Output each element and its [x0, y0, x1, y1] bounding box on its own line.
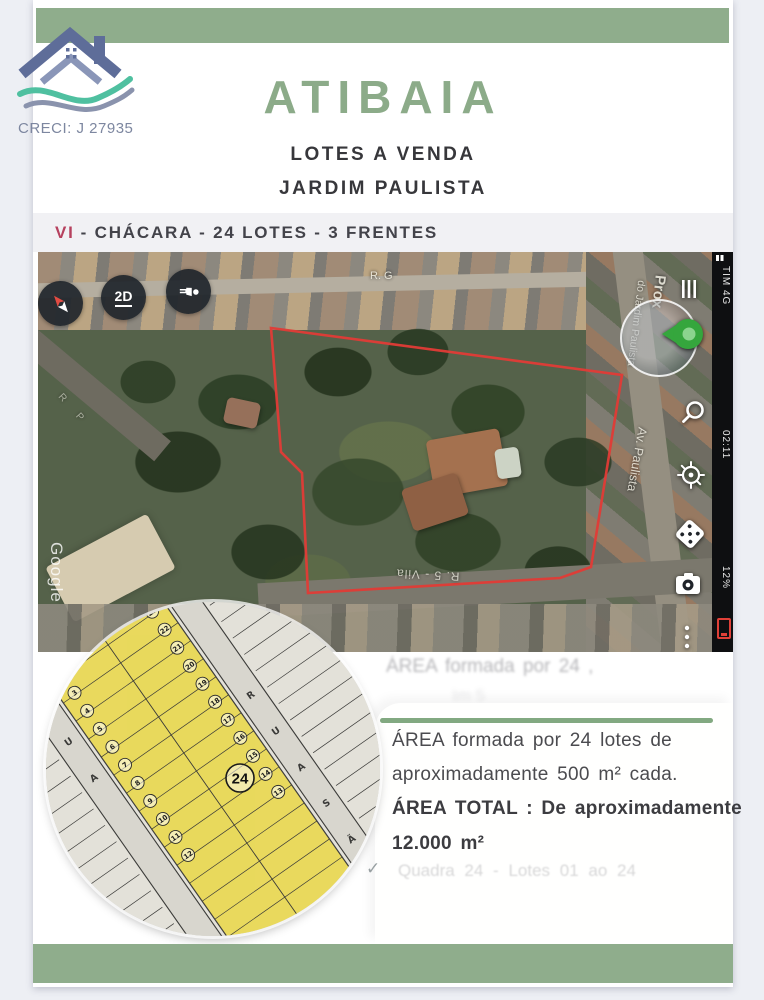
compass-icon: [42, 285, 79, 322]
compass-button[interactable]: [38, 281, 83, 326]
battery-icon: [717, 618, 731, 639]
quadra-lotes-text: Quadra 24 - Lotes 01 ao 24: [398, 861, 636, 881]
subtitle-lotes: LOTES A VENDA: [33, 144, 733, 166]
carrier-label: TIM 4G: [714, 266, 731, 305]
2d-label: 2D: [115, 288, 133, 307]
quadra-number: 24: [232, 771, 249, 788]
google-watermark: Google: [46, 542, 66, 603]
camera-icon[interactable]: [674, 572, 702, 598]
search-icon[interactable]: [680, 398, 708, 426]
ghost-text-line: ÁREA formada por 24 ,: [386, 656, 593, 678]
signal-bars-icon: [716, 255, 725, 261]
flyer: CRECI: J 27935 ATIBAIA LOTES A VENDA JAR…: [0, 0, 764, 1000]
clock-label: 02:11: [714, 430, 731, 459]
2d-button[interactable]: 2D: [101, 275, 146, 320]
green-divider: [380, 718, 713, 723]
bottom-green-bar: [33, 944, 733, 983]
listing-banner: VI- CHÁCARA - 24 LOTES - 3 FRENTES: [33, 213, 733, 252]
property-outline: [38, 252, 730, 652]
menu-icon[interactable]: [678, 278, 700, 300]
battery-percent-label: 12%: [714, 566, 731, 589]
area-line-1: ÁREA formada por 24 lotes de: [392, 730, 672, 752]
area-total-line: ÁREA TOTAL : De aproximadamente: [392, 798, 742, 820]
area-total-value: 12.000 m²: [392, 833, 484, 855]
banner-roman-numeral: VI: [55, 223, 75, 242]
plat-map-svg: 123456789101112242322212019181716151413 …: [46, 602, 380, 936]
banner-text: - CHÁCARA - 24 LOTES - 3 FRENTES: [81, 223, 438, 242]
more-dots-icon[interactable]: [682, 624, 692, 650]
helm-icon[interactable]: [676, 460, 706, 490]
page-title: ATIBAIA: [33, 70, 733, 124]
check-icon: ✓: [366, 859, 380, 879]
pegman-icon: [178, 281, 200, 303]
dice-icon[interactable]: [674, 518, 706, 550]
satellite-map[interactable]: R. G do Jardim Paulista Prox Av. Paulist…: [38, 252, 730, 652]
plat-map-inset: 123456789101112242322212019181716151413 …: [46, 602, 380, 936]
area-line-2: aproximadamente 500 m² cada.: [392, 764, 678, 786]
map-pin-icon[interactable]: [658, 310, 710, 358]
street-label-top: R. G: [370, 270, 393, 282]
subtitle-bairro: JARDIM PAULISTA: [33, 178, 733, 200]
pegman-button[interactable]: [166, 269, 211, 314]
